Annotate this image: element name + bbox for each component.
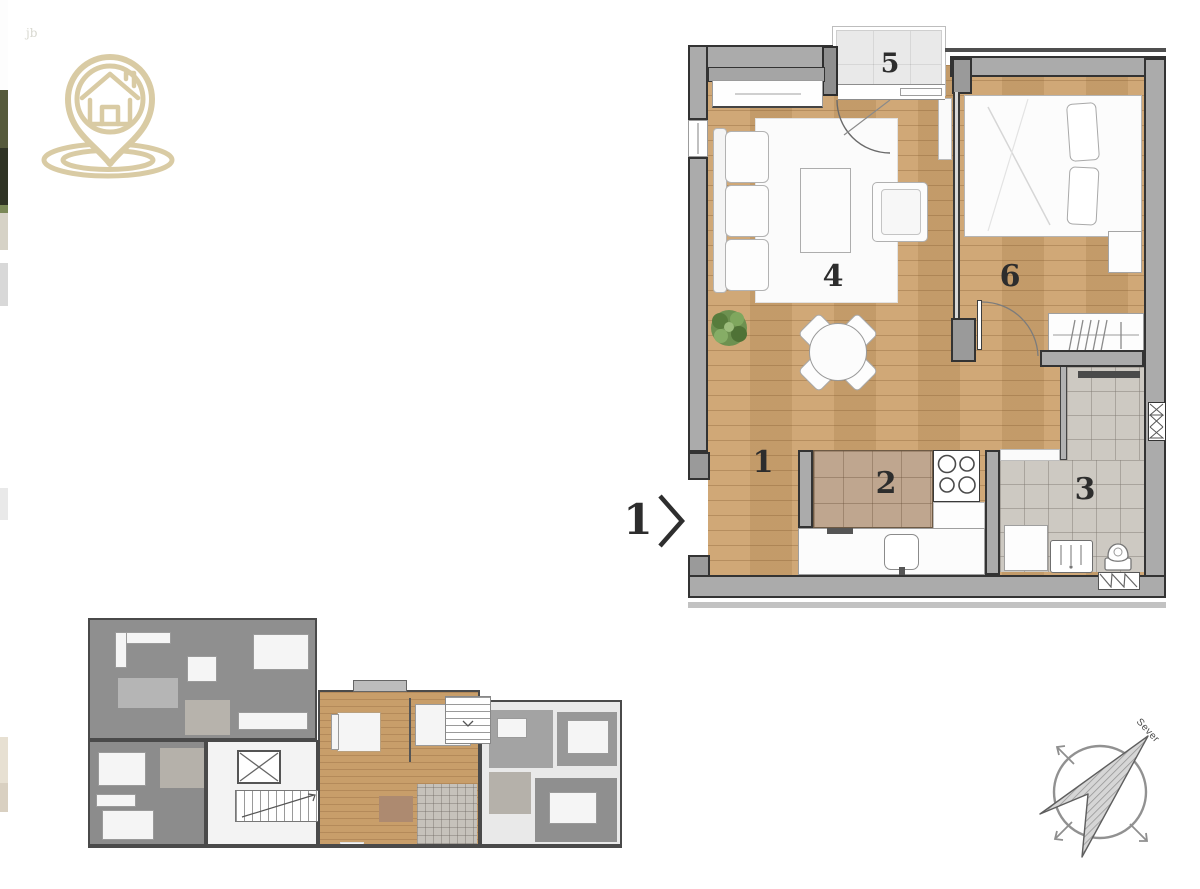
room-number-bedroom: 6 [1000,262,1021,292]
sliver-segment [0,737,8,783]
mini-room-area [489,710,553,768]
sliver-segment [0,90,8,148]
bathroom-floor-upper [1067,366,1144,460]
wall-top-left [688,45,833,69]
house-location-pin-logo [38,32,183,182]
entry-door-opening [690,482,706,553]
pillow [1066,102,1100,162]
mini-partition [409,698,411,762]
mini-bottom-wall [88,844,622,848]
compass-label: Sever [1134,717,1162,746]
outer-wall-line [688,602,1166,608]
mini-sofa [331,714,339,750]
sliver-segment [0,0,8,90]
wall-pillar [952,58,972,94]
mini-stairs [235,790,321,822]
glass-partition-wall [953,92,960,320]
wall-left [688,157,708,452]
compass-icon: Sever [1030,700,1180,875]
sofa-cushion [725,131,769,183]
mini-room-area [160,748,204,788]
wall [985,450,1000,575]
mini-room-area [185,700,230,735]
entry-number: 1 [623,499,652,541]
mini-kitchen [379,796,413,822]
counter-edge [827,528,853,534]
wall-right [1144,58,1166,598]
bathroom-door-threshold [1000,449,1060,461]
window-sill [712,80,823,108]
bathroom-vanity [1004,525,1048,571]
stove [933,450,980,502]
wall-top-right [950,56,1166,77]
room-number-terrace: 5 [881,51,900,78]
armchair-cushion [881,189,921,235]
wall-left [688,45,708,120]
faucet [899,567,905,575]
mini-unit [88,618,317,740]
mini-balcony [353,680,407,692]
sliver-segment [0,148,8,205]
mini-room-area [489,772,531,814]
wall-bottom [688,575,1166,598]
kitchen-floor [813,450,933,528]
sliding-door-panel [900,88,942,96]
mini-bed [549,792,597,824]
house-location-pin-icon [38,32,183,182]
sofa-cushion [725,239,769,291]
wall-pillar [951,318,976,362]
pillow [1067,166,1100,225]
dining-table [809,323,867,381]
duct-shaft [1148,402,1166,441]
sliver-segment [0,263,8,306]
washing-machine [1050,540,1093,573]
bathroom-mirror [1078,371,1140,378]
mini-furniture [115,632,127,668]
window-glass-line [735,93,801,95]
room-number-living-room: 4 [823,262,844,292]
bedroom-door-leaf [977,300,982,350]
toilet [1103,530,1133,572]
sliver-segment [0,783,8,812]
bed [964,95,1142,237]
window [688,120,708,157]
mini-unit [88,740,206,848]
radiator [1098,572,1140,590]
wall [798,450,813,528]
room-number-kitchen: 2 [876,469,897,499]
mini-furniture [187,656,217,682]
sliver-segment [0,488,8,520]
mini-furniture [102,810,154,840]
mini-furniture [98,752,146,786]
mini-stairwell [445,696,491,744]
terrace-sliding-door [838,84,945,100]
mini-bathroom [417,784,477,844]
kitchen-counter-corner [933,502,985,529]
entry-arrow-icon [656,492,686,550]
mini-room-area [557,712,617,766]
mini-rug [337,712,381,752]
plant-icon [706,305,752,351]
coffee-table [800,168,851,253]
mini-furniture [253,634,309,670]
armchair [872,182,928,242]
mini-furniture [96,794,136,807]
mini-elevator [237,750,281,784]
mini-room-area [118,678,178,708]
building-overview-plan [85,612,625,854]
washing-machine-detail [1051,541,1091,571]
mini-furniture [497,718,527,738]
console-table [938,98,952,160]
mini-bed [567,720,609,754]
entry-marker: 1 [622,488,686,550]
room-number-bathroom: 3 [1075,475,1096,505]
sliver-segment [0,205,8,213]
corner-mark: jb [26,26,37,40]
window-glass-line [697,123,699,154]
mini-corridor [206,740,318,848]
sofa-cushion [725,185,769,237]
kitchen-sink [884,534,919,570]
mini-furniture [238,712,308,730]
nightstand [1108,231,1142,273]
wall [1040,350,1144,367]
main-floor-plan: 1 2 3 4 5 6 [688,25,1166,610]
window-lintel-line [945,48,1166,52]
room-number-hallway: 1 [753,448,774,478]
mini-unit [480,700,622,848]
mini-room-area [535,778,617,842]
compass: Sever [1030,700,1180,875]
floor-plan-page: jb [0,0,1200,889]
stove-burners [934,451,978,500]
wall [1060,366,1067,460]
sliver-segment [0,213,8,250]
sofa [725,131,769,291]
entry-jamb [688,452,710,480]
